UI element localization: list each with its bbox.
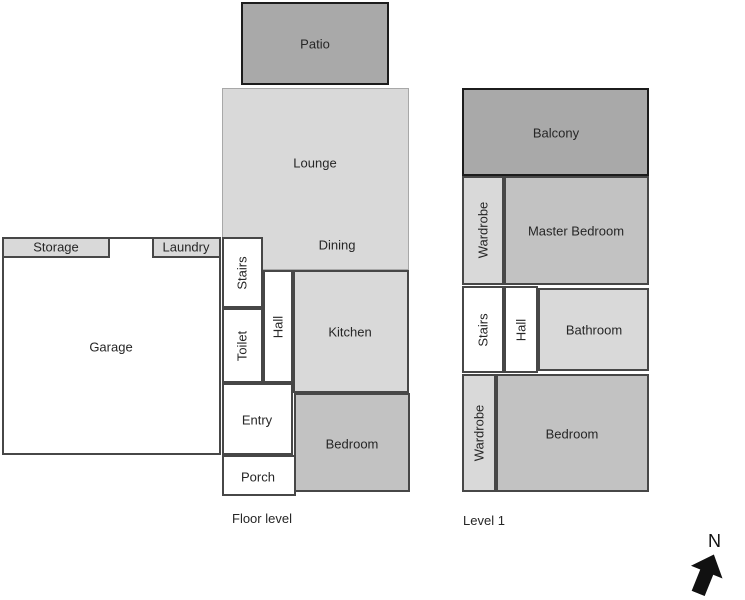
floorplan-canvas: Floor level Level 1 N LoungeDiningPatioG… (0, 0, 745, 600)
bathroom-label: Bathroom (566, 324, 622, 337)
kitchen-label: Kitchen (328, 326, 371, 339)
garage-label: Garage (89, 341, 132, 354)
patio-label: Patio (300, 38, 330, 51)
compass-north-label: N (708, 531, 721, 552)
balcony-label: Balcony (533, 127, 579, 140)
wardrobe-lower-label: Wardrobe (473, 405, 486, 462)
entry-label: Entry (242, 414, 272, 427)
toilet-label: Toilet (236, 331, 249, 361)
bedroom-level1-label: Bedroom (546, 428, 599, 441)
lounge-dining-label: Dining (319, 239, 356, 252)
floor-level-caption: Floor level (232, 511, 292, 526)
storage-label: Storage (33, 241, 79, 254)
porch-label: Porch (241, 471, 275, 484)
lounge-dining-label: Lounge (293, 157, 336, 170)
laundry-label: Laundry (163, 241, 210, 254)
hall-level1-label: Hall (515, 319, 528, 341)
master-bedroom-label: Master Bedroom (528, 225, 624, 238)
level-1-caption: Level 1 (463, 513, 505, 528)
hall-floor-label: Hall (272, 316, 285, 338)
bedroom-floor-label: Bedroom (326, 438, 379, 451)
north-arrow-icon (681, 547, 732, 600)
stairs-level1-label: Stairs (477, 313, 490, 346)
wardrobe-upper-label: Wardrobe (477, 202, 490, 259)
stairs-floor-label: Stairs (236, 256, 249, 289)
